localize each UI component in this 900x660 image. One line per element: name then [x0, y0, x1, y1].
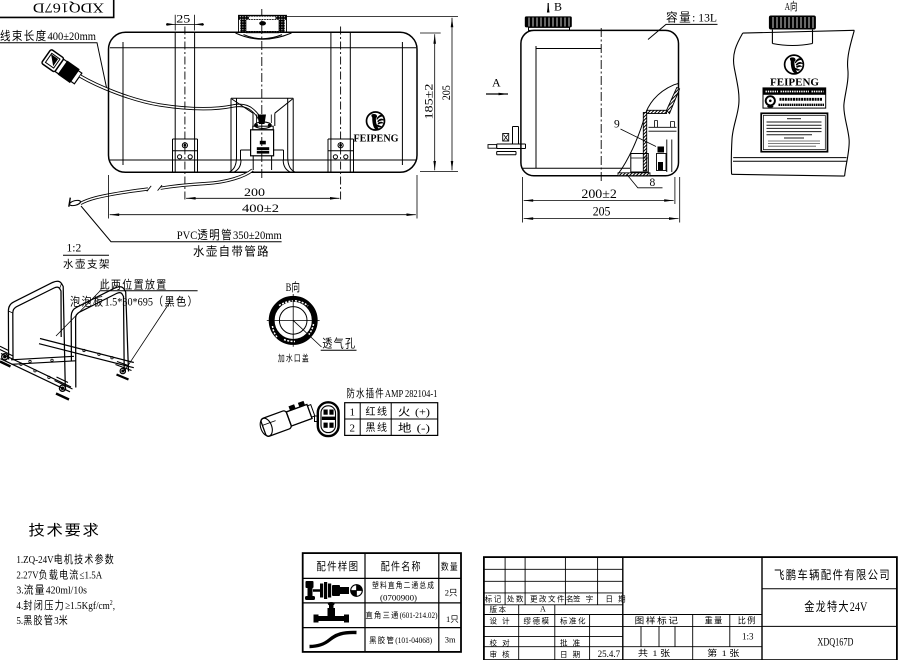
svg-text:容量: 13L: 容量: 13L — [666, 10, 717, 25]
svg-text:(0700900): (0700900) — [380, 593, 417, 603]
svg-text:水壶支架: 水壶支架 — [63, 258, 111, 271]
svg-text:地 (-): 地 (-) — [398, 422, 430, 435]
svg-text:共 1 张: 共 1 张 — [638, 648, 672, 658]
svg-text:5.黑胶管3米: 5.黑胶管3米 — [16, 613, 69, 627]
svg-text:线束长度400±20mm: 线束长度400±20mm — [0, 28, 97, 43]
svg-text:B: B — [554, 0, 562, 14]
svg-text:标准化: 标准化 — [560, 616, 587, 626]
svg-text:塑料直角二通总成: 塑料直角二通总成 — [372, 580, 435, 590]
svg-text:FEIPENG: FEIPENG — [770, 77, 819, 89]
svg-text:签 字: 签 字 — [573, 593, 595, 603]
svg-text:9: 9 — [614, 119, 620, 131]
svg-text:缪德模: 缪德模 — [524, 616, 551, 626]
svg-text:金龙特大24V: 金龙特大24V — [804, 599, 867, 614]
svg-text:日 期: 日 期 — [606, 594, 628, 603]
svg-text:技术要求: 技术要求 — [29, 523, 101, 540]
svg-text:XDQ167D: XDQ167D — [33, 1, 104, 16]
svg-text:图样标记: 图样标记 — [635, 616, 680, 626]
svg-text:2: 2 — [350, 423, 356, 435]
svg-text:黑线: 黑线 — [366, 421, 389, 434]
svg-text:防水插件AMP 282104-1: 防水插件AMP 282104-1 — [346, 386, 437, 400]
svg-text:205: 205 — [441, 85, 453, 100]
svg-text:4.封闭压力≥1.5Kgf/cm2,: 4.封闭压力≥1.5Kgf/cm2, — [16, 598, 115, 612]
svg-text:标记: 标记 — [485, 593, 503, 603]
svg-text:重量: 重量 — [705, 616, 724, 626]
svg-text:此两位置放置: 此两位置放置 — [100, 278, 168, 292]
svg-text:8: 8 — [650, 177, 656, 189]
svg-text:PVC透明管350±20mm: PVC透明管350±20mm — [177, 227, 283, 242]
svg-text:处数: 处数 — [507, 593, 525, 603]
svg-text:25.4.7: 25.4.7 — [598, 649, 621, 659]
svg-text:1只: 1只 — [446, 614, 460, 624]
svg-text:版本: 版本 — [490, 604, 508, 614]
svg-text:FEIPENG: FEIPENG — [354, 134, 399, 145]
svg-text:批 准: 批 准 — [560, 637, 582, 647]
svg-text:25: 25 — [176, 14, 190, 26]
svg-text:200±2: 200±2 — [581, 187, 617, 201]
svg-text:A向: A向 — [785, 0, 799, 13]
svg-text:400±2: 400±2 — [242, 203, 279, 215]
svg-text:透气孔: 透气孔 — [322, 336, 356, 351]
svg-text:A: A — [492, 76, 501, 90]
svg-text:1.ZQ-24V电机技术参数: 1.ZQ-24V电机技术参数 — [16, 552, 115, 566]
svg-text:1:2: 1:2 — [67, 243, 82, 255]
svg-text:A: A — [540, 605, 546, 614]
svg-text:加水口盖: 加水口盖 — [278, 353, 310, 364]
svg-text:第 1 张: 第 1 张 — [707, 648, 741, 658]
svg-text:1:3: 1:3 — [742, 632, 754, 642]
svg-text:水壶自带管路: 水壶自带管路 — [193, 244, 270, 259]
svg-text:红线: 红线 — [366, 405, 389, 418]
svg-text:设 计: 设 计 — [490, 616, 512, 626]
svg-text:审 核: 审 核 — [490, 649, 512, 659]
svg-text:火 (+): 火 (+) — [398, 407, 430, 419]
svg-text:2只: 2只 — [445, 588, 459, 598]
svg-text:比例: 比例 — [738, 616, 757, 626]
svg-text:更改文件名: 更改文件名 — [530, 593, 575, 603]
svg-text:3m: 3m — [445, 635, 456, 645]
svg-text:185±2: 185±2 — [423, 83, 435, 119]
svg-text:直角三通(601-214.02): 直角三通(601-214.02) — [366, 610, 438, 620]
svg-text:配件样图: 配件样图 — [316, 559, 359, 573]
svg-text:2.27V负载电流≤1.5A: 2.27V负载电流≤1.5A — [16, 567, 102, 581]
svg-text:B向: B向 — [286, 280, 302, 294]
svg-text:配件名称: 配件名称 — [381, 559, 422, 573]
svg-text:XDQ167D: XDQ167D — [817, 637, 853, 649]
svg-text:205: 205 — [593, 205, 611, 219]
svg-text:数量: 数量 — [441, 561, 459, 573]
svg-text:日 期: 日 期 — [560, 650, 582, 659]
svg-text:3.流量420ml/10s: 3.流量420ml/10s — [16, 583, 87, 597]
svg-text:1: 1 — [350, 407, 356, 419]
svg-text:校 对: 校 对 — [490, 637, 512, 647]
svg-text:200: 200 — [244, 187, 265, 199]
svg-text:飞鹏车辆配件有限公司: 飞鹏车辆配件有限公司 — [774, 567, 891, 582]
svg-text:黑胶管(101-04068): 黑胶管(101-04068) — [369, 635, 432, 645]
